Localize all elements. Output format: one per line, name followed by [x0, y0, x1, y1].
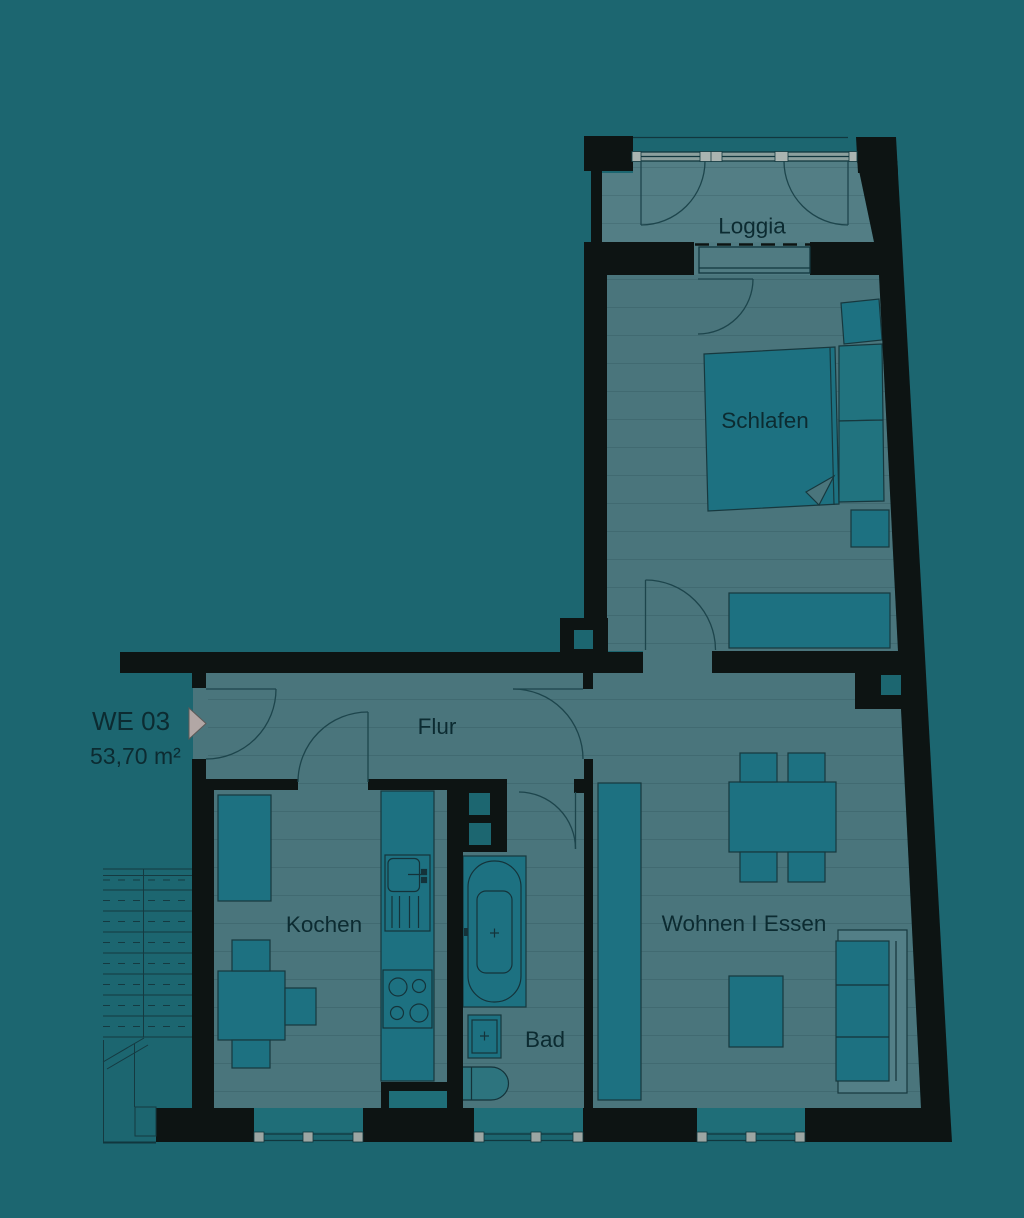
svg-text:Kochen: Kochen [286, 912, 362, 937]
svg-text:Flur: Flur [418, 714, 457, 739]
svg-text:Loggia: Loggia [718, 214, 786, 239]
svg-text:Schlafen: Schlafen [721, 408, 809, 433]
svg-text:Wohnen I Essen: Wohnen I Essen [662, 911, 827, 936]
svg-text:Bad: Bad [525, 1027, 565, 1052]
svg-text:53,70 m²: 53,70 m² [90, 743, 181, 769]
svg-text:WE 03: WE 03 [92, 706, 170, 736]
